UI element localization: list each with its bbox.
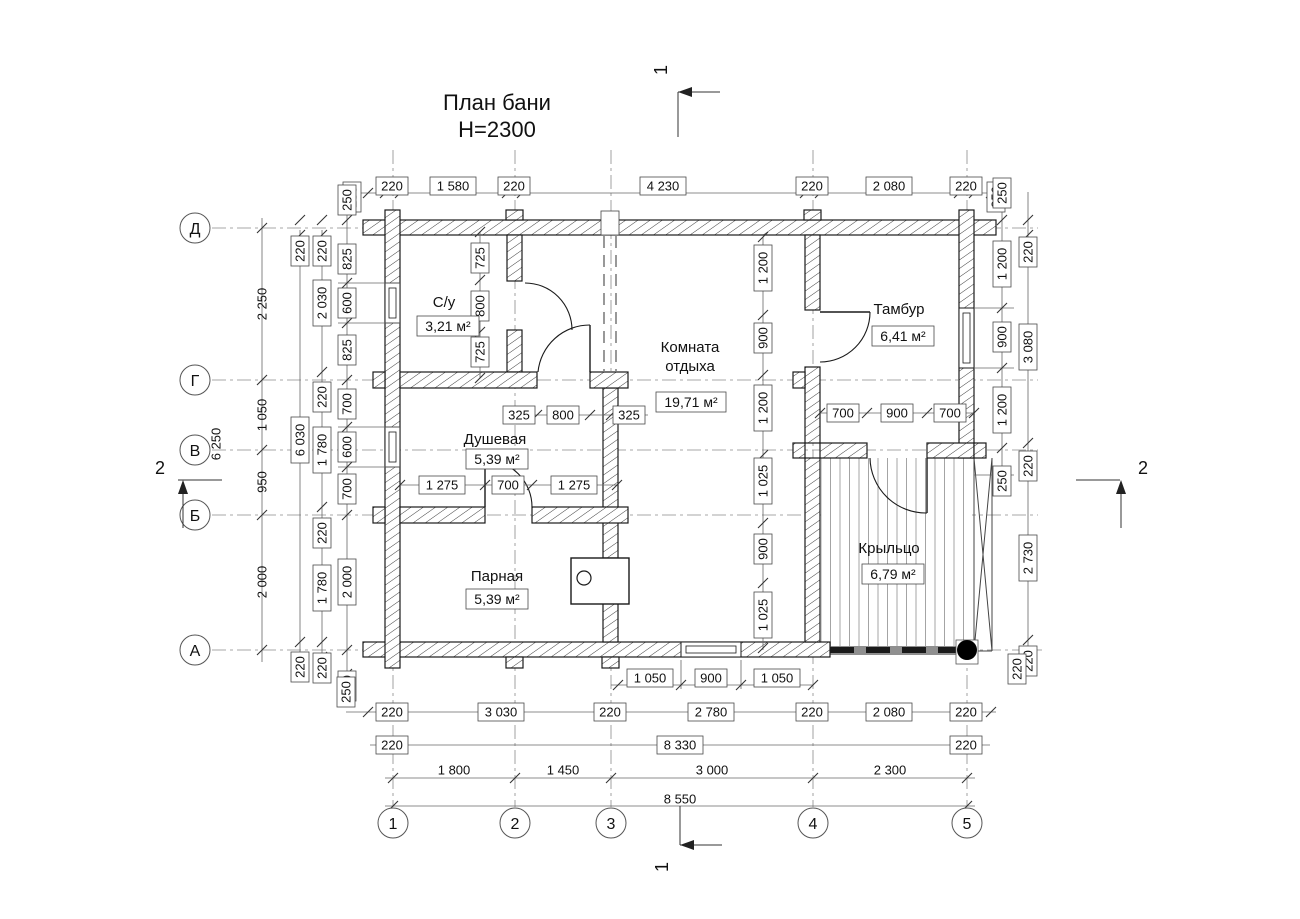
svg-text:8 550: 8 550 <box>664 792 697 807</box>
room-area-porch: 6,79 м² <box>862 564 924 584</box>
svg-text:220: 220 <box>315 522 330 544</box>
column-dot <box>957 640 977 660</box>
axis-row-v: В <box>190 443 201 460</box>
svg-text:950: 950 <box>255 471 270 493</box>
dim-label: 250 <box>993 466 1011 496</box>
svg-text:3,21 м²: 3,21 м² <box>425 318 471 334</box>
dim-label: 2 300 <box>874 763 907 778</box>
svg-text:1 025: 1 025 <box>756 599 771 632</box>
svg-text:1 200: 1 200 <box>995 394 1010 427</box>
dim-label: 4 230 <box>640 177 686 195</box>
stove-circle <box>577 571 591 585</box>
svg-text:900: 900 <box>756 538 771 560</box>
svg-text:2 780: 2 780 <box>695 705 728 720</box>
dim-label: 220 <box>796 703 828 721</box>
svg-text:2 300: 2 300 <box>874 763 907 778</box>
svg-text:220: 220 <box>1010 658 1025 680</box>
section-2-right: 2 <box>1076 458 1148 528</box>
dim-label: 1 800 <box>438 763 471 778</box>
svg-text:900: 900 <box>756 327 771 349</box>
dim-label: 700 <box>934 404 966 422</box>
axis-col-5: 5 <box>963 816 972 833</box>
svg-text:5,39 м²: 5,39 м² <box>474 451 520 467</box>
dim-label: 1 200 <box>993 241 1011 287</box>
door-syu <box>525 283 572 330</box>
dim-label: 800 <box>547 406 579 424</box>
dim-label: 220 <box>313 236 331 266</box>
dim-label: 220 <box>950 736 982 754</box>
svg-text:1 450: 1 450 <box>547 763 580 778</box>
svg-text:3 080: 3 080 <box>1021 331 1036 364</box>
dim-label: 250 <box>338 185 356 215</box>
room-area-tambur: 6,41 м² <box>872 326 934 346</box>
svg-text:250: 250 <box>339 681 354 703</box>
svg-text:1 050: 1 050 <box>255 399 270 432</box>
room-area-lounge: 19,71 м² <box>656 392 726 412</box>
svg-text:600: 600 <box>340 436 355 458</box>
svg-text:3 030: 3 030 <box>485 705 518 720</box>
svg-text:1 580: 1 580 <box>437 179 470 194</box>
svg-text:2 000: 2 000 <box>340 566 355 599</box>
svg-text:325: 325 <box>618 408 640 423</box>
svg-text:220: 220 <box>381 705 403 720</box>
dim-label: 725 <box>471 243 489 273</box>
dim-label: 825 <box>338 335 356 365</box>
drawing-canvas: План бани Н=2300 <box>0 0 1300 919</box>
dim-label: 700 <box>827 404 859 422</box>
dim-label: 2 730 <box>1019 535 1037 581</box>
dim-label: 8 330 <box>657 736 703 754</box>
dim-label: 600 <box>338 432 356 462</box>
dim-label: 220 <box>950 177 982 195</box>
svg-text:1 200: 1 200 <box>756 252 771 285</box>
svg-text:220: 220 <box>381 738 403 753</box>
svg-text:6 030: 6 030 <box>293 424 308 457</box>
svg-text:250: 250 <box>340 189 355 211</box>
dim-label: 825 <box>338 244 356 274</box>
dim-label: 220 <box>950 703 982 721</box>
dim-label: 220 <box>1019 237 1037 267</box>
svg-text:1 800: 1 800 <box>438 763 471 778</box>
dim-label: 220 <box>291 652 309 682</box>
drawing-title: План бани Н=2300 <box>443 90 551 142</box>
axis-row-a: А <box>190 643 201 660</box>
room-name-syu: С/у <box>433 294 456 311</box>
svg-text:220: 220 <box>293 240 308 262</box>
svg-text:2: 2 <box>1138 458 1148 478</box>
svg-text:2 250: 2 250 <box>255 288 270 321</box>
stove <box>571 558 629 604</box>
svg-text:220: 220 <box>315 657 330 679</box>
dim-label: 8 550 <box>664 792 697 807</box>
dim-label: 6 030 <box>291 417 309 463</box>
dim-label: 220 <box>1019 451 1037 481</box>
dim-label: 2 780 <box>688 703 734 721</box>
svg-text:8 330: 8 330 <box>664 738 697 753</box>
svg-text:700: 700 <box>340 478 355 500</box>
svg-text:220: 220 <box>801 179 823 194</box>
dim-label: 1 780 <box>313 427 331 473</box>
axis-row-d: Д <box>190 221 201 238</box>
svg-text:1 050: 1 050 <box>634 671 667 686</box>
svg-text:900: 900 <box>995 326 1010 348</box>
svg-text:250: 250 <box>995 182 1010 204</box>
axis-col-1: 1 <box>389 816 398 833</box>
svg-text:6,79 м²: 6,79 м² <box>870 566 916 582</box>
svg-text:220: 220 <box>1021 455 1036 477</box>
dim-label: 1 050 <box>754 669 800 687</box>
svg-text:2 030: 2 030 <box>315 287 330 320</box>
svg-text:1 275: 1 275 <box>426 478 459 493</box>
svg-text:250: 250 <box>995 470 1010 492</box>
dim-label: 2 080 <box>866 177 912 195</box>
svg-text:825: 825 <box>340 339 355 361</box>
svg-text:5,39 м²: 5,39 м² <box>474 591 520 607</box>
dim-label: 1 275 <box>551 476 597 494</box>
dim-label: 220 <box>376 703 408 721</box>
dim-label: 600 <box>338 288 356 318</box>
dim-label: 220 <box>376 736 408 754</box>
room-name-porch: Крыльцо <box>858 540 919 557</box>
section-1-top: 1 <box>651 65 720 137</box>
window-dushevaya <box>385 427 400 467</box>
svg-text:220: 220 <box>599 705 621 720</box>
dim-label: 900 <box>881 404 913 422</box>
window-lounge <box>681 642 741 657</box>
dim-label: 725 <box>471 337 489 367</box>
axis-row-g: Г <box>191 373 200 390</box>
dim-label: 2 250 <box>255 288 270 321</box>
dim-label: 220 <box>594 703 626 721</box>
svg-text:6 250: 6 250 <box>209 428 224 461</box>
dim-label: 950 <box>255 471 270 493</box>
room-name-dushevaya: Душевая <box>464 431 527 448</box>
svg-text:220: 220 <box>315 240 330 262</box>
door-lounge-corridor <box>538 325 590 372</box>
svg-text:1 200: 1 200 <box>995 248 1010 281</box>
svg-text:700: 700 <box>340 393 355 415</box>
wall-top <box>363 220 996 235</box>
svg-text:1: 1 <box>651 65 671 75</box>
title-line2: Н=2300 <box>458 117 536 142</box>
floor-plan: План бани Н=2300 <box>0 0 1300 919</box>
window-tambur <box>959 308 974 368</box>
room-area-syu: 3,21 м² <box>417 316 479 336</box>
svg-text:2 730: 2 730 <box>1021 542 1036 575</box>
svg-text:220: 220 <box>955 179 977 194</box>
dim-label: 2 030 <box>313 280 331 326</box>
window-syu <box>385 283 400 323</box>
svg-text:2: 2 <box>155 458 165 478</box>
svg-text:825: 825 <box>340 248 355 270</box>
svg-text:220: 220 <box>503 179 525 194</box>
svg-text:2 000: 2 000 <box>255 566 270 599</box>
svg-text:700: 700 <box>832 406 854 421</box>
dim-label: 220 <box>376 177 408 195</box>
svg-text:1 780: 1 780 <box>315 434 330 467</box>
dim-label: 220 <box>291 236 309 266</box>
dim-label: 1 275 <box>419 476 465 494</box>
dim-label: 1 200 <box>993 387 1011 433</box>
svg-text:800: 800 <box>473 295 488 317</box>
dim-label: 1 580 <box>430 177 476 195</box>
room-area-parnaya: 5,39 м² <box>466 589 528 609</box>
dim-label: 220 <box>313 518 331 548</box>
dim-label: 1 450 <box>547 763 580 778</box>
dim-label: 3 080 <box>1019 324 1037 370</box>
top-wall-notch <box>601 211 619 235</box>
svg-text:220: 220 <box>315 386 330 408</box>
axis-col-2: 2 <box>511 816 520 833</box>
dim-label: 220 <box>313 653 331 683</box>
svg-text:19,71 м²: 19,71 м² <box>664 394 718 410</box>
dim-label: 900 <box>754 323 772 353</box>
dim-label: 220 <box>498 177 530 195</box>
dim-label: 1 025 <box>754 458 772 504</box>
svg-text:700: 700 <box>939 406 961 421</box>
dim-label: 900 <box>695 669 727 687</box>
svg-text:900: 900 <box>886 406 908 421</box>
svg-text:325: 325 <box>508 408 530 423</box>
dim-label: 220 <box>1008 654 1026 684</box>
dim-label: 220 <box>313 382 331 412</box>
section-1-bottom: 1 <box>652 806 722 872</box>
door-tambur <box>820 312 870 362</box>
room-name-lounge: Комната <box>661 339 720 356</box>
wall-bottom <box>363 642 830 657</box>
svg-text:6,41 м²: 6,41 м² <box>880 328 926 344</box>
dim-label: 3 030 <box>478 703 524 721</box>
title-line1: План бани <box>443 90 551 115</box>
svg-text:2 080: 2 080 <box>873 179 906 194</box>
dim-label: 2 000 <box>338 559 356 605</box>
dim-label: 325 <box>613 406 645 424</box>
dim-label: 1 780 <box>313 565 331 611</box>
svg-text:1 780: 1 780 <box>315 572 330 605</box>
svg-text:1: 1 <box>652 862 672 872</box>
dim-label: 250 <box>337 677 355 707</box>
dim-label: 1 050 <box>255 399 270 432</box>
dim-label: 900 <box>993 322 1011 352</box>
dim-label: 2 000 <box>255 566 270 599</box>
svg-text:4 230: 4 230 <box>647 179 680 194</box>
svg-text:1 050: 1 050 <box>761 671 794 686</box>
svg-text:800: 800 <box>552 408 574 423</box>
dim-label: 1 025 <box>754 592 772 638</box>
svg-text:725: 725 <box>473 341 488 363</box>
svg-text:220: 220 <box>1021 241 1036 263</box>
svg-text:2 080: 2 080 <box>873 705 906 720</box>
svg-text:220: 220 <box>955 705 977 720</box>
porch-column <box>956 640 978 664</box>
axis-col-3: 3 <box>607 816 616 833</box>
dim-label: 3 000 <box>696 763 729 778</box>
dim-label: 900 <box>754 534 772 564</box>
svg-text:1 025: 1 025 <box>756 465 771 498</box>
dim-label: 700 <box>492 476 524 494</box>
dim-label: 325 <box>503 406 535 424</box>
dim-label: 220 <box>796 177 828 195</box>
svg-text:700: 700 <box>497 478 519 493</box>
svg-text:3 000: 3 000 <box>696 763 729 778</box>
svg-text:220: 220 <box>955 738 977 753</box>
dim-label: 250 <box>993 178 1011 208</box>
svg-text:отдыха: отдыха <box>665 358 715 375</box>
svg-text:725: 725 <box>473 247 488 269</box>
dim-label: 1 200 <box>754 385 772 431</box>
dashed-partition <box>604 236 616 371</box>
axis-col-4: 4 <box>809 816 818 833</box>
room-name-tambur: Тамбур <box>874 301 925 318</box>
svg-text:220: 220 <box>381 179 403 194</box>
room-area-dushevaya: 5,39 м² <box>466 449 528 469</box>
axis-row-b: Б <box>190 508 201 525</box>
dim-label: 2 080 <box>866 703 912 721</box>
dim-label: 6 250 <box>209 428 224 461</box>
svg-text:1 200: 1 200 <box>756 392 771 425</box>
dim-label: 1 200 <box>754 245 772 291</box>
svg-text:220: 220 <box>801 705 823 720</box>
dim-label: 1 050 <box>627 669 673 687</box>
dim-label: 700 <box>338 389 356 419</box>
room-name-parnaya: Парная <box>471 568 523 585</box>
svg-text:220: 220 <box>293 656 308 678</box>
svg-text:900: 900 <box>700 671 722 686</box>
svg-text:1 275: 1 275 <box>558 478 591 493</box>
svg-text:600: 600 <box>340 292 355 314</box>
dim-label: 700 <box>338 474 356 504</box>
